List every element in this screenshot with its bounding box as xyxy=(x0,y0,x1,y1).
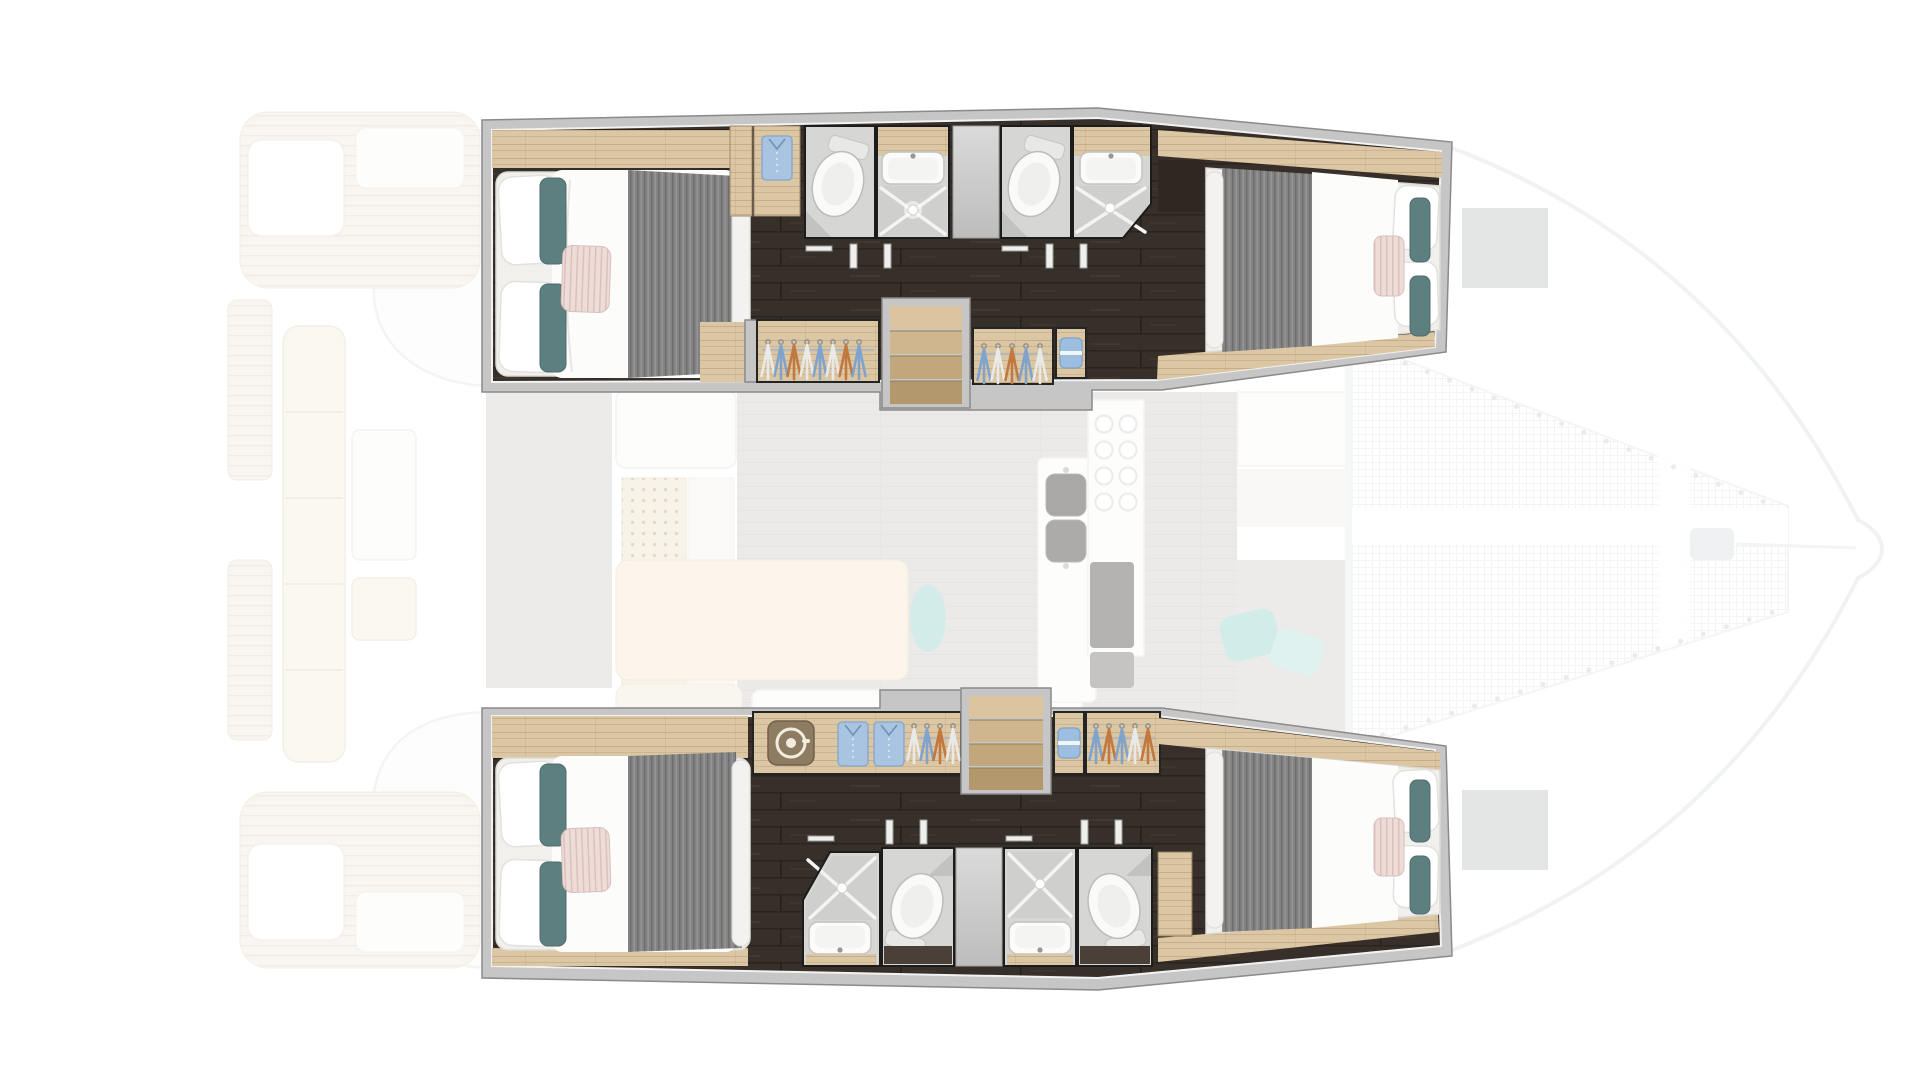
pillow-icon xyxy=(1374,818,1404,876)
bathroom-top-2 xyxy=(1001,126,1071,238)
pillow-icon xyxy=(1374,236,1404,296)
trampoline-strap xyxy=(1658,455,1690,650)
cockpit-bench xyxy=(283,326,345,762)
folded-shirt-icon xyxy=(762,136,792,180)
towel-shelf xyxy=(1056,328,1086,378)
pillow-icon xyxy=(1410,198,1430,262)
shower-top-1 xyxy=(877,126,949,238)
wardrobe-bottom-main xyxy=(753,712,961,774)
cockpit-floor xyxy=(486,392,612,688)
pillow-icon xyxy=(1410,856,1430,914)
floor-strip xyxy=(884,946,952,964)
pillow-icon xyxy=(1410,780,1430,842)
dinghy-pad xyxy=(248,140,344,236)
headboard-shelf xyxy=(492,716,748,758)
shower-bottom-2 xyxy=(1004,848,1076,966)
bathroom-bottom-2 xyxy=(1078,848,1152,966)
pillow-icon xyxy=(561,827,611,893)
desk xyxy=(1158,852,1192,936)
bathroom-bottom-1 xyxy=(879,848,954,966)
mast-bulkhead xyxy=(956,848,1002,966)
pillow-icon xyxy=(561,245,611,313)
hall-cabinet xyxy=(730,126,752,216)
folded-shirt-icon xyxy=(874,722,904,766)
catamaran-floor-plan: Top-down floor plan of a sailing catamar… xyxy=(0,0,1920,1080)
washbasin-icon xyxy=(882,152,944,184)
dinette-backrest xyxy=(616,560,908,680)
galley-drawer xyxy=(1090,652,1134,688)
washbasin-icon xyxy=(809,922,871,954)
shirt-shelf xyxy=(1054,712,1084,774)
cockpit-seat xyxy=(352,578,416,640)
dinghy-pad xyxy=(248,844,344,940)
bow-tip xyxy=(1858,520,1882,578)
bedside-panel xyxy=(1158,160,1204,212)
washbasin-icon xyxy=(1080,152,1142,184)
double-bed-icon xyxy=(496,752,750,952)
transom-step xyxy=(228,560,272,740)
wardrobe-bottom-small xyxy=(1086,712,1160,774)
headboard-shelf xyxy=(492,130,748,168)
folded-shirt-icon xyxy=(838,722,868,766)
vanity-shelf xyxy=(806,954,876,966)
stern-locker xyxy=(356,128,464,188)
floor-strip xyxy=(1080,946,1150,964)
cabin-bottom-aft xyxy=(492,716,750,966)
hull-top xyxy=(482,108,1452,410)
vanity-shelf xyxy=(1007,954,1073,966)
double-bed-icon xyxy=(1206,748,1440,934)
door-post xyxy=(745,320,757,382)
washing-machine-icon xyxy=(768,721,814,765)
galley-sink-icon xyxy=(1046,474,1086,516)
double-bed-icon xyxy=(1206,168,1440,352)
mast-bulkhead xyxy=(953,126,999,238)
floor-wood-strip xyxy=(700,322,746,382)
teal-cushion xyxy=(910,584,946,652)
bow-hatch xyxy=(1462,790,1548,870)
pillow-icon xyxy=(540,178,566,264)
nav-desk xyxy=(616,390,736,468)
wardrobe-top-main xyxy=(757,320,879,382)
bathroom-top-1 xyxy=(805,126,875,238)
towel-icon xyxy=(1060,338,1082,368)
washbasin-icon xyxy=(1009,922,1071,954)
stern-locker xyxy=(356,892,464,952)
wardrobe-top-small xyxy=(973,328,1053,384)
pillow-icon xyxy=(1410,276,1430,336)
windlass xyxy=(1690,528,1734,560)
oven xyxy=(1090,562,1134,648)
towel-icon xyxy=(1058,728,1080,758)
hull-bottom xyxy=(482,688,1452,990)
bow-hatch xyxy=(1462,208,1548,288)
galley-sink-icon xyxy=(1046,520,1086,562)
stairs-icon xyxy=(961,688,1051,794)
transom-step xyxy=(228,300,272,480)
stairs-icon xyxy=(882,298,970,408)
cockpit-table xyxy=(352,430,416,560)
fwd-seat xyxy=(1238,470,1346,526)
fwd-console xyxy=(1238,392,1346,466)
